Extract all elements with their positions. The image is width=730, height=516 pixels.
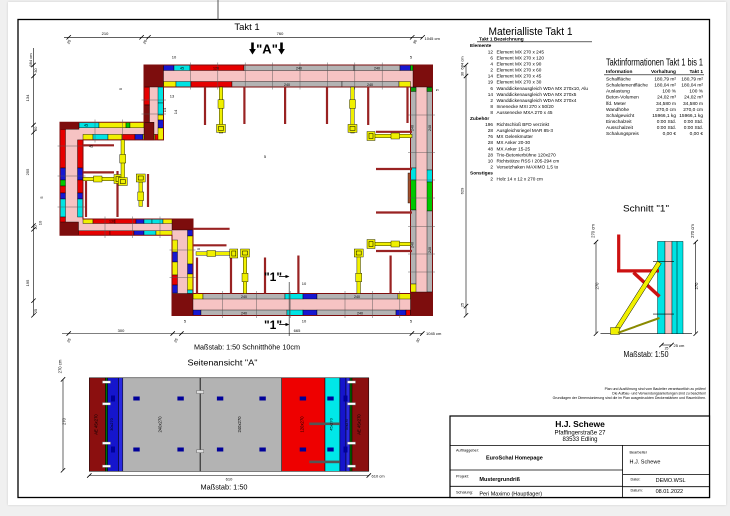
svg-text:240: 240 (411, 242, 415, 248)
svg-text:180,79 m²: 180,79 m² (654, 77, 676, 83)
svg-text:34,580 m: 34,580 m (683, 101, 703, 107)
svg-text:10: 10 (302, 319, 307, 324)
svg-text:14: 14 (173, 109, 178, 114)
svg-text:Die Aufbau- und Verwendungsanl: Die Aufbau- und Verwendungsanleitungen s… (612, 392, 706, 396)
svg-text:2: 2 (490, 98, 493, 103)
svg-text:8: 8 (490, 110, 493, 115)
svg-text:45x270: 45x270 (330, 418, 334, 430)
svg-text:Versetzhaken MAXIMO 1,5 to: Versetzhaken MAXIMO 1,5 to (497, 165, 559, 170)
svg-text:100 %: 100 % (689, 89, 703, 95)
svg-text:20: 20 (34, 127, 38, 131)
svg-text:760: 760 (277, 31, 284, 36)
svg-text:Wanddickenausgleich WDA MX 270: Wanddickenausgleich WDA MX 270x10, Alu (497, 86, 589, 91)
svg-text:180,79 m²: 180,79 m² (681, 77, 703, 83)
svg-text:Plan und Ausführung sind vom B: Plan und Ausführung sind vom Bauleiter v… (605, 387, 706, 391)
svg-text:Information: Information (606, 69, 632, 75)
svg-text:8: 8 (490, 104, 493, 109)
svg-text:Zubehör: Zubehör (470, 116, 489, 122)
svg-text:Mustergrundriß: Mustergrundriß (479, 477, 520, 483)
svg-text:1045 cm: 1045 cm (426, 331, 442, 336)
svg-text:610 cm: 610 cm (372, 473, 386, 478)
svg-text:270: 270 (62, 417, 67, 425)
svg-text:0:00 Std.: 0:00 Std. (684, 119, 703, 125)
svg-text:Vorhaltung: Vorhaltung (651, 69, 676, 75)
svg-text:25: 25 (34, 309, 38, 313)
svg-text:Elemente: Elemente (470, 43, 492, 49)
svg-text:240: 240 (374, 67, 380, 71)
svg-text:Richtschloß BFD verzinkt: Richtschloß BFD verzinkt (497, 122, 550, 127)
svg-text:14: 14 (488, 92, 494, 97)
svg-text:665: 665 (294, 328, 301, 333)
svg-text:Richtstütze RSS I 205-294 cm: Richtstütze RSS I 205-294 cm (497, 158, 560, 163)
svg-text:270: 270 (694, 282, 699, 290)
svg-text:Beton-Volumen: Beton-Volumen (606, 95, 639, 101)
svg-text:270 cm: 270 cm (591, 224, 596, 238)
svg-text:Schalung:: Schalung: (456, 491, 473, 495)
svg-text:629: 629 (460, 187, 465, 194)
svg-text:lfd. Meter: lfd. Meter (606, 101, 626, 107)
svg-text:Auslastung: Auslastung (606, 89, 630, 95)
svg-text:Wanddickenausgleich WDA MX 270: Wanddickenausgleich WDA MX 270x4 (497, 98, 577, 103)
svg-text:Element MX 270 x 90: Element MX 270 x 90 (497, 62, 542, 67)
svg-text:Ausschalzeit: Ausschalzeit (606, 125, 634, 131)
svg-text:28: 28 (488, 152, 494, 157)
svg-text:1045 cm: 1045 cm (425, 36, 441, 41)
svg-text:Materialliste Takt 1: Materialliste Takt 1 (489, 26, 573, 38)
svg-text:Taktinformationen Takt 1 bis: Taktinformationen Takt 1 bis 1 (606, 58, 703, 69)
svg-text:30: 30 (34, 68, 38, 72)
svg-text:Wandhöhe: Wandhöhe (606, 107, 629, 113)
svg-text:48: 48 (488, 146, 494, 151)
svg-text:34,580 m: 34,580 m (656, 101, 676, 107)
svg-text:Schnitt "1": Schnitt "1" (623, 204, 669, 214)
svg-text:EuroSchal Homepage: EuroSchal Homepage (486, 456, 543, 462)
svg-text:MX Anker 20-30: MX Anker 20-30 (497, 140, 531, 145)
svg-text:Einschalzeit: Einschalzeit (606, 119, 632, 125)
svg-text:240: 240 (428, 125, 432, 131)
svg-text:10: 10 (172, 55, 177, 60)
svg-text:24,02 m³: 24,02 m³ (684, 95, 703, 101)
svg-text:Wanddickenausgleich WDA MX 270: Wanddickenausgleich WDA MX 270x5 (497, 92, 577, 97)
svg-text:Grundlagen der Dimensionierung: Grundlagen der Dimensionierung sind die … (553, 396, 706, 400)
svg-text:Peri Maximo (Hauptlager): Peri Maximo (Hauptlager) (479, 491, 542, 497)
svg-text:MX Anker 15-25: MX Anker 15-25 (497, 146, 531, 151)
svg-text:120: 120 (213, 67, 219, 71)
svg-text:Sonstiges: Sonstiges (470, 171, 493, 177)
svg-text:10: 10 (488, 158, 494, 163)
svg-text:H.J. Schewe: H.J. Schewe (555, 419, 605, 429)
svg-text:Element MX 270 x 120: Element MX 270 x 120 (497, 56, 545, 61)
svg-text:2: 2 (490, 165, 493, 170)
svg-text:14: 14 (162, 107, 167, 112)
svg-text:2: 2 (490, 177, 493, 182)
svg-text:240x270: 240x270 (158, 416, 163, 433)
svg-text:19: 19 (488, 80, 494, 85)
svg-text:Innenecke MXI 270 x 50/20: Innenecke MXI 270 x 50/20 (497, 104, 554, 109)
svg-text:H.J. Schewe: H.J. Schewe (630, 460, 661, 466)
svg-text:30x270: 30x270 (345, 419, 349, 430)
svg-text:2: 2 (490, 68, 493, 73)
svg-text:Element MX 270 x 30: Element MX 270 x 30 (497, 80, 542, 85)
svg-text:240: 240 (284, 83, 290, 87)
svg-text:270 cm: 270 cm (690, 224, 695, 238)
svg-text:Element MX 270 x 45: Element MX 270 x 45 (497, 74, 542, 79)
svg-text:270,0 cm: 270,0 cm (656, 107, 676, 113)
svg-text:30: 30 (461, 72, 465, 76)
svg-text:Schalelementfläche: Schalelementfläche (606, 83, 648, 89)
svg-text:240: 240 (241, 312, 247, 316)
svg-text:10: 10 (34, 225, 38, 229)
svg-text:255: 255 (25, 168, 30, 175)
svg-text:0:00 Std.: 0:00 Std. (657, 119, 676, 125)
svg-text:195: 195 (25, 279, 30, 286)
svg-text:Ausgleichsriegel MAR 85-3: Ausgleichsriegel MAR 85-3 (497, 128, 554, 133)
svg-text:Element MX 270 x 245: Element MX 270 x 245 (497, 50, 545, 55)
svg-text:Maßstab: 1:50: Maßstab: 1:50 (624, 350, 669, 359)
svg-text:Takt 1: Takt 1 (689, 69, 703, 75)
svg-text:Schalgewicht: Schalgewicht (606, 113, 635, 119)
svg-text:270 cm: 270 cm (58, 359, 63, 373)
svg-text:6: 6 (490, 56, 493, 61)
svg-text:15966,1 kg: 15966,1 kg (652, 113, 676, 119)
svg-text:684 cm: 684 cm (460, 56, 465, 70)
svg-text:Datum:: Datum: (631, 489, 643, 493)
svg-text:180,04 m²: 180,04 m² (681, 83, 703, 89)
svg-text:08.01.2022: 08.01.2022 (656, 489, 684, 495)
svg-text:4: 4 (490, 62, 493, 67)
svg-text:45: 45 (89, 145, 93, 149)
svg-text:30x270: 30x270 (110, 418, 114, 430)
svg-text:0,00 €: 0,00 € (663, 131, 677, 137)
svg-text:28: 28 (488, 128, 494, 133)
svg-text:76: 76 (488, 134, 494, 139)
svg-text:Holz 14 x 12 x 270 cm: Holz 14 x 12 x 270 cm (497, 177, 543, 182)
svg-text:240: 240 (428, 247, 432, 253)
svg-text:240: 240 (241, 295, 247, 299)
svg-text:Element MX 270 x 60: Element MX 270 x 60 (497, 68, 542, 73)
svg-text:134: 134 (25, 94, 30, 101)
svg-text:Projekt:: Projekt: (456, 475, 469, 479)
svg-text:25 cm: 25 cm (674, 343, 686, 348)
svg-text:Schalfläche: Schalfläche (606, 77, 631, 83)
svg-text:270: 270 (595, 282, 600, 290)
svg-text:Takt 1: Takt 1 (234, 22, 259, 33)
svg-text:196: 196 (485, 122, 493, 127)
svg-text:AE 45x270: AE 45x270 (356, 414, 361, 435)
svg-text:10: 10 (302, 281, 307, 286)
svg-text:83533 Edling: 83533 Edling (562, 437, 597, 443)
svg-text:MX Gelenkmutter: MX Gelenkmutter (497, 134, 534, 139)
svg-text:10: 10 (38, 220, 43, 225)
svg-text:"1": "1" (264, 270, 282, 284)
svg-text:12: 12 (488, 50, 494, 55)
svg-text:684 cm: 684 cm (28, 53, 33, 67)
svg-text:Schalungspreis: Schalungspreis (606, 131, 639, 137)
svg-text:6: 6 (490, 86, 493, 91)
svg-text:240: 240 (367, 83, 373, 87)
svg-text:24,02 m³: 24,02 m³ (657, 95, 676, 101)
svg-text:0,00 €: 0,00 € (690, 131, 704, 137)
svg-text:120x270: 120x270 (299, 416, 304, 433)
svg-text:DEMO.WSL: DEMO.WSL (656, 478, 686, 484)
svg-text:210: 210 (102, 31, 109, 36)
svg-text:Maßstab: 1:50: Maßstab: 1:50 (201, 485, 248, 492)
svg-text:45: 45 (180, 67, 184, 71)
svg-text:Auftraggeber:: Auftraggeber: (456, 449, 479, 453)
svg-text:130: 130 (109, 220, 115, 224)
svg-text:28: 28 (488, 140, 494, 145)
svg-text:240: 240 (296, 67, 302, 71)
svg-text:Maßstab: 1:50 Schnitthöhe 10: Maßstab: 1:50 Schnitthöhe 10cm (194, 345, 300, 352)
svg-text:Pfaffingerstraße 27: Pfaffingerstraße 27 (555, 430, 607, 436)
svg-text:270,0 cm: 270,0 cm (683, 107, 703, 113)
svg-text:0:00 Std.: 0:00 Std. (657, 125, 676, 131)
svg-text:"1": "1" (264, 318, 282, 332)
svg-text:240: 240 (357, 312, 363, 316)
svg-text:"A": "A" (256, 42, 278, 57)
svg-text:610: 610 (226, 476, 233, 481)
svg-text:Seitenansicht "A": Seitenansicht "A" (188, 359, 258, 368)
svg-text:240: 240 (354, 295, 360, 299)
svg-text:15966,1 kg: 15966,1 kg (679, 113, 703, 119)
svg-text:14: 14 (488, 74, 494, 79)
svg-text:25: 25 (461, 303, 465, 307)
svg-text:Aussenecke MXA 270 x 45: Aussenecke MXA 270 x 45 (497, 110, 553, 115)
svg-text:Datei:: Datei: (631, 477, 641, 481)
svg-text:240x270: 240x270 (237, 416, 242, 433)
svg-text:Trio-Betonierbühne 120x270: Trio-Betonierbühne 120x270 (497, 152, 557, 157)
svg-text:240: 240 (411, 125, 415, 131)
svg-text:Bearbeiter: Bearbeiter (630, 451, 648, 455)
svg-text:45: 45 (84, 123, 88, 127)
svg-text:13: 13 (170, 94, 175, 99)
svg-text:180,04 m²: 180,04 m² (654, 83, 676, 89)
svg-text:300: 300 (118, 328, 125, 333)
svg-text:AE 45x270: AE 45x270 (94, 414, 99, 435)
svg-text:100 %: 100 % (662, 89, 676, 95)
svg-text:0:00 Std.: 0:00 Std. (684, 125, 703, 131)
